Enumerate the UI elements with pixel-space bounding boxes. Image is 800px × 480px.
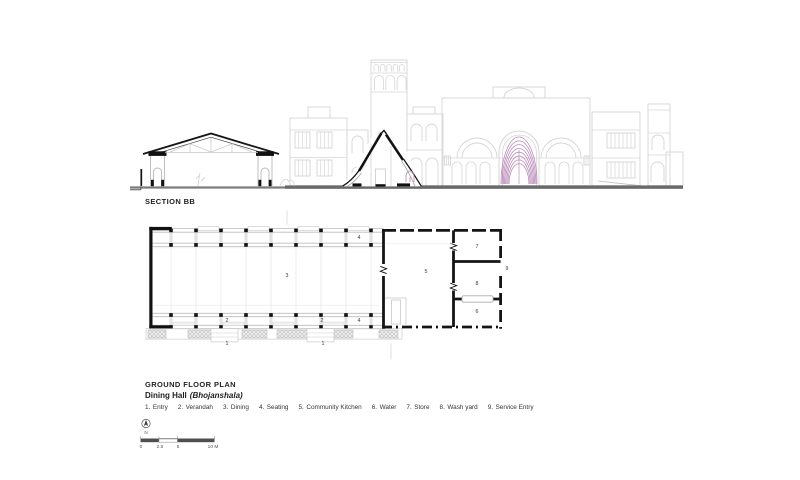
north-label: N	[144, 430, 147, 435]
scale-bar	[141, 436, 215, 442]
legend-item-number: 4.	[259, 404, 264, 411]
plan-title: GROUND FLOOR PLAN	[145, 380, 236, 389]
room-number-label: 1	[322, 341, 325, 347]
room-number-label: 2	[321, 318, 324, 324]
architectural-drawing-sheet: SECTION BB GROUND FLOOR PLAN Dining Hall…	[0, 0, 800, 480]
legend-item: 7.Store	[406, 404, 429, 411]
legend-item-label: Service Entry	[496, 404, 534, 411]
legend-item: 5.Community Kitchen	[298, 404, 361, 411]
legend-item-label: Dining	[231, 404, 249, 411]
room-number-label: 4	[358, 235, 361, 241]
legend-item-number: 9.	[488, 404, 493, 411]
room-number-label: 9	[506, 266, 509, 272]
legend-item-label: Entry	[153, 404, 168, 411]
plan-subtitle-name: Dining Hall	[145, 391, 187, 400]
legend-item-number: 7.	[406, 404, 411, 411]
legend-item: 6.Water	[372, 404, 397, 411]
room-number-label: 5	[425, 269, 428, 275]
legend-item-number: 8.	[440, 404, 445, 411]
legend-item-number: 6.	[372, 404, 377, 411]
legend: 1.Entry 2.Verandah 3.Dining 4.Seating 5.…	[145, 404, 544, 411]
legend-item-label: Community Kitchen	[306, 404, 361, 411]
section-title: SECTION BB	[145, 197, 195, 206]
floor-plan-drawing	[146, 211, 502, 360]
north-arrow-icon	[142, 419, 150, 427]
scale-mark-label: 2.5	[157, 445, 164, 450]
room-number-label: 6	[476, 309, 479, 315]
legend-item-number: 3.	[223, 404, 228, 411]
scale-mark-label: 10 M	[208, 445, 219, 450]
legend-item-number: 1.	[145, 404, 150, 411]
plan-subtitle-alt-name: (Bhojanshala)	[190, 391, 243, 400]
legend-item: 1.Entry	[145, 404, 168, 411]
sectioned-tent-structure	[342, 124, 421, 187]
plan-subtitle: Dining Hall(Bhojanshala)	[145, 391, 243, 400]
room-number-label: 8	[476, 281, 479, 287]
scale-mark-label: 0	[140, 445, 143, 450]
legend-item-label: Wash yard	[447, 404, 477, 411]
legend-item-label: Seating	[267, 404, 289, 411]
room-number-label: 1	[226, 341, 229, 347]
legend-item: 2.Verandah	[178, 404, 213, 411]
legend-item-label: Verandah	[186, 404, 213, 411]
room-number-label: 3	[286, 273, 289, 279]
room-number-label: 4	[358, 318, 361, 324]
legend-item: 8.Wash yard	[440, 404, 478, 411]
section-drawing	[130, 60, 683, 190]
legend-item-label: Water	[380, 404, 397, 411]
legend-item-label: Store	[414, 404, 429, 411]
room-number-label: 7	[476, 244, 479, 250]
scale-mark-label: 5	[177, 445, 180, 450]
legend-item-number: 5.	[298, 404, 303, 411]
background-elevation	[290, 60, 683, 187]
legend-item-number: 2.	[178, 404, 183, 411]
room-number-label: 2	[226, 318, 229, 324]
legend-item: 3.Dining	[223, 404, 249, 411]
legend-item: 4.Seating	[259, 404, 289, 411]
legend-item: 9.Service Entry	[488, 404, 534, 411]
sectioned-hall-left	[141, 134, 294, 187]
